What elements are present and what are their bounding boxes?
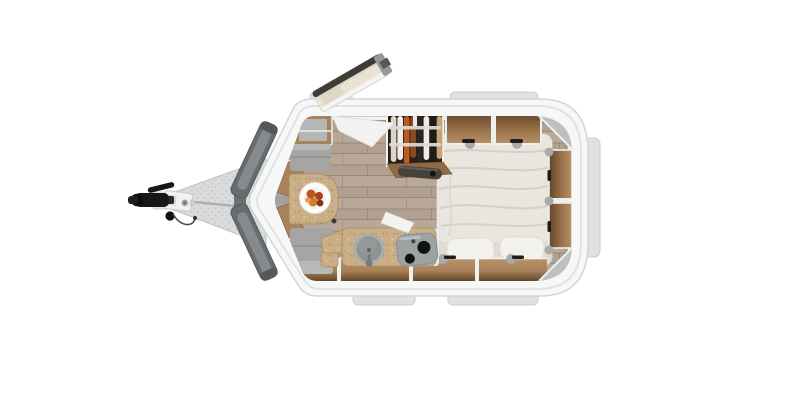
shelf-support bbox=[545, 197, 554, 206]
shelf-handle bbox=[444, 256, 456, 260]
clothing-item bbox=[417, 116, 423, 166]
hanger-rail bbox=[389, 143, 441, 147]
food bbox=[315, 192, 323, 200]
shelf-handle bbox=[512, 256, 524, 260]
cabinet-inset bbox=[299, 119, 327, 141]
overhead-shelves: Overhead storage shelves bbox=[446, 113, 541, 149]
shelf-divider bbox=[491, 113, 496, 144]
shelf-handle bbox=[462, 139, 475, 143]
sink-shade bbox=[358, 239, 377, 254]
wardrobe: Wardrobe with hanging clothes Stowed bag bbox=[387, 112, 452, 180]
sink-drain bbox=[367, 248, 371, 252]
stove: Cooktop with burners bbox=[396, 232, 439, 266]
food bbox=[307, 190, 316, 199]
shelf-divider bbox=[475, 258, 479, 281]
shelf-handle bbox=[510, 139, 523, 143]
bench-cushion-highlight bbox=[290, 144, 331, 150]
food bbox=[317, 200, 324, 207]
floorplan-canvas: Camper trailer floor plan - top view bbox=[0, 0, 800, 400]
shelf-handle bbox=[548, 221, 552, 232]
clothing-item bbox=[437, 116, 443, 159]
hanger-rail bbox=[389, 126, 441, 130]
dinette: Front dinette seating Bench seat Bench s… bbox=[289, 144, 338, 274]
clothing-item bbox=[404, 116, 410, 164]
food bbox=[305, 197, 311, 203]
page: Camper trailer floor plan - top view bbox=[0, 0, 800, 400]
rear-shelf-box bbox=[549, 150, 572, 199]
clothing-item bbox=[424, 116, 430, 160]
shelf-handle bbox=[548, 170, 552, 181]
clothing-item bbox=[397, 116, 403, 160]
bench-top: Bench seat bbox=[290, 144, 331, 171]
rear-shelf-box bbox=[549, 203, 572, 248]
shelf-support bbox=[545, 148, 554, 157]
cork-stool bbox=[321, 251, 338, 267]
shelf-support bbox=[545, 246, 554, 255]
faucet-base bbox=[366, 260, 373, 267]
plate-with-food: Plate with food bbox=[300, 183, 331, 214]
bed: Double bed with duvet Pillow Pillow bbox=[437, 134, 552, 266]
breakaway-knob bbox=[165, 211, 174, 220]
dinette-table: Dinette table Plate with food bbox=[289, 174, 338, 224]
cable-end bbox=[193, 216, 197, 220]
clothing-item bbox=[430, 116, 436, 163]
rear-shelves: Rear wall storage shelves bbox=[545, 148, 573, 255]
table-leg bbox=[332, 219, 337, 224]
coupler-tip bbox=[128, 196, 138, 204]
